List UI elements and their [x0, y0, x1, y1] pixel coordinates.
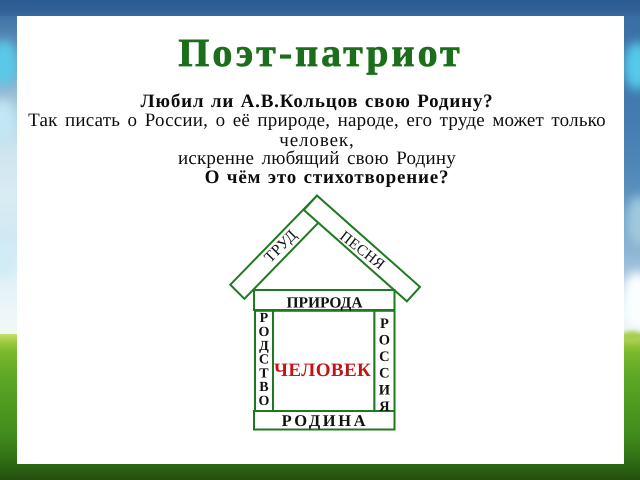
svg-text:Т: Т [259, 366, 269, 381]
svg-text:О: О [258, 325, 269, 340]
svg-text:И: И [379, 382, 391, 398]
svg-text:Р: Р [260, 311, 269, 326]
svg-text:В: В [259, 380, 268, 395]
svg-text:С: С [379, 349, 389, 365]
svg-text:Р: Р [380, 316, 389, 332]
svg-text:О: О [258, 394, 269, 409]
svg-text:Д: Д [259, 339, 269, 354]
svg-text:ЧЕЛОВЕК: ЧЕЛОВЕК [274, 360, 371, 381]
svg-text:С: С [379, 366, 389, 382]
svg-text:ПРИРОДА: ПРИРОДА [286, 295, 363, 312]
svg-text:Я: Я [379, 399, 390, 415]
svg-text:РОДИНА: РОДИНА [282, 411, 369, 430]
svg-text:О: О [379, 333, 390, 349]
svg-text:С: С [259, 353, 269, 368]
